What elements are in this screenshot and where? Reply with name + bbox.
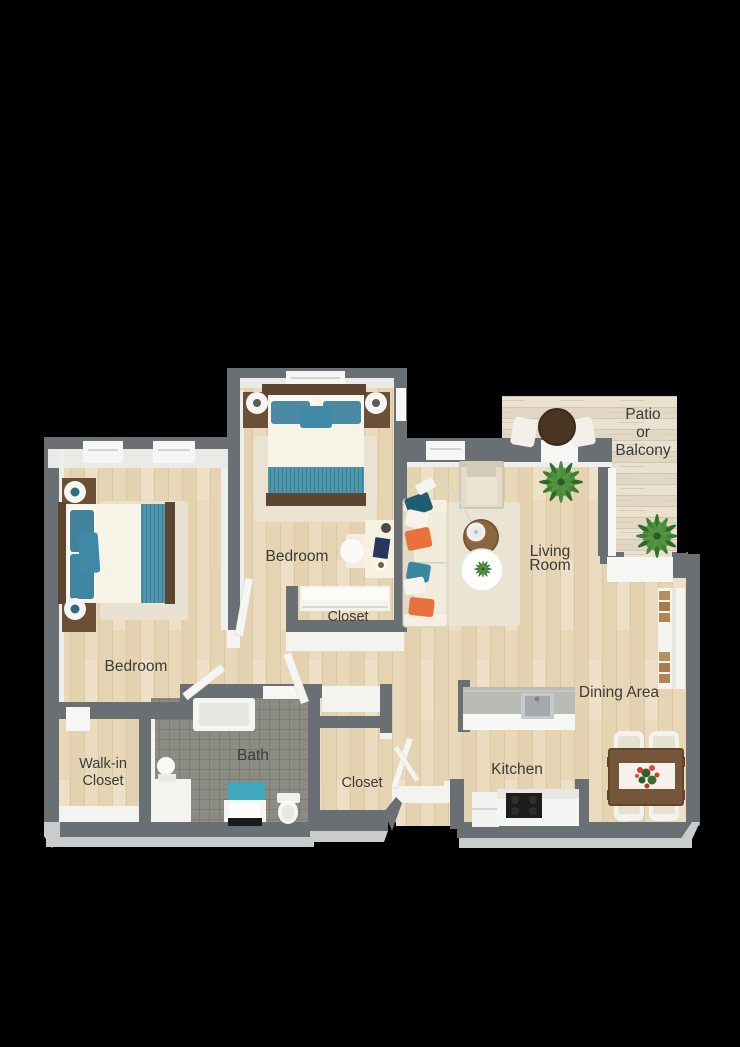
svg-text:Room: Room [529, 557, 570, 574]
svg-text:Closet: Closet [327, 609, 368, 625]
svg-text:Bedroom: Bedroom [105, 658, 168, 675]
svg-text:Walk-in: Walk-in [79, 756, 127, 772]
svg-text:Bedroom: Bedroom [266, 548, 329, 565]
svg-text:Kitchen: Kitchen [491, 761, 543, 778]
svg-text:Dining Area: Dining Area [579, 684, 660, 701]
svg-text:Bath: Bath [237, 747, 269, 764]
svg-text:Balcony: Balcony [615, 442, 670, 459]
svg-text:Closet: Closet [341, 775, 382, 791]
svg-text:Patio: Patio [625, 406, 660, 423]
svg-text:or: or [636, 424, 650, 441]
svg-text:Closet: Closet [82, 773, 123, 789]
